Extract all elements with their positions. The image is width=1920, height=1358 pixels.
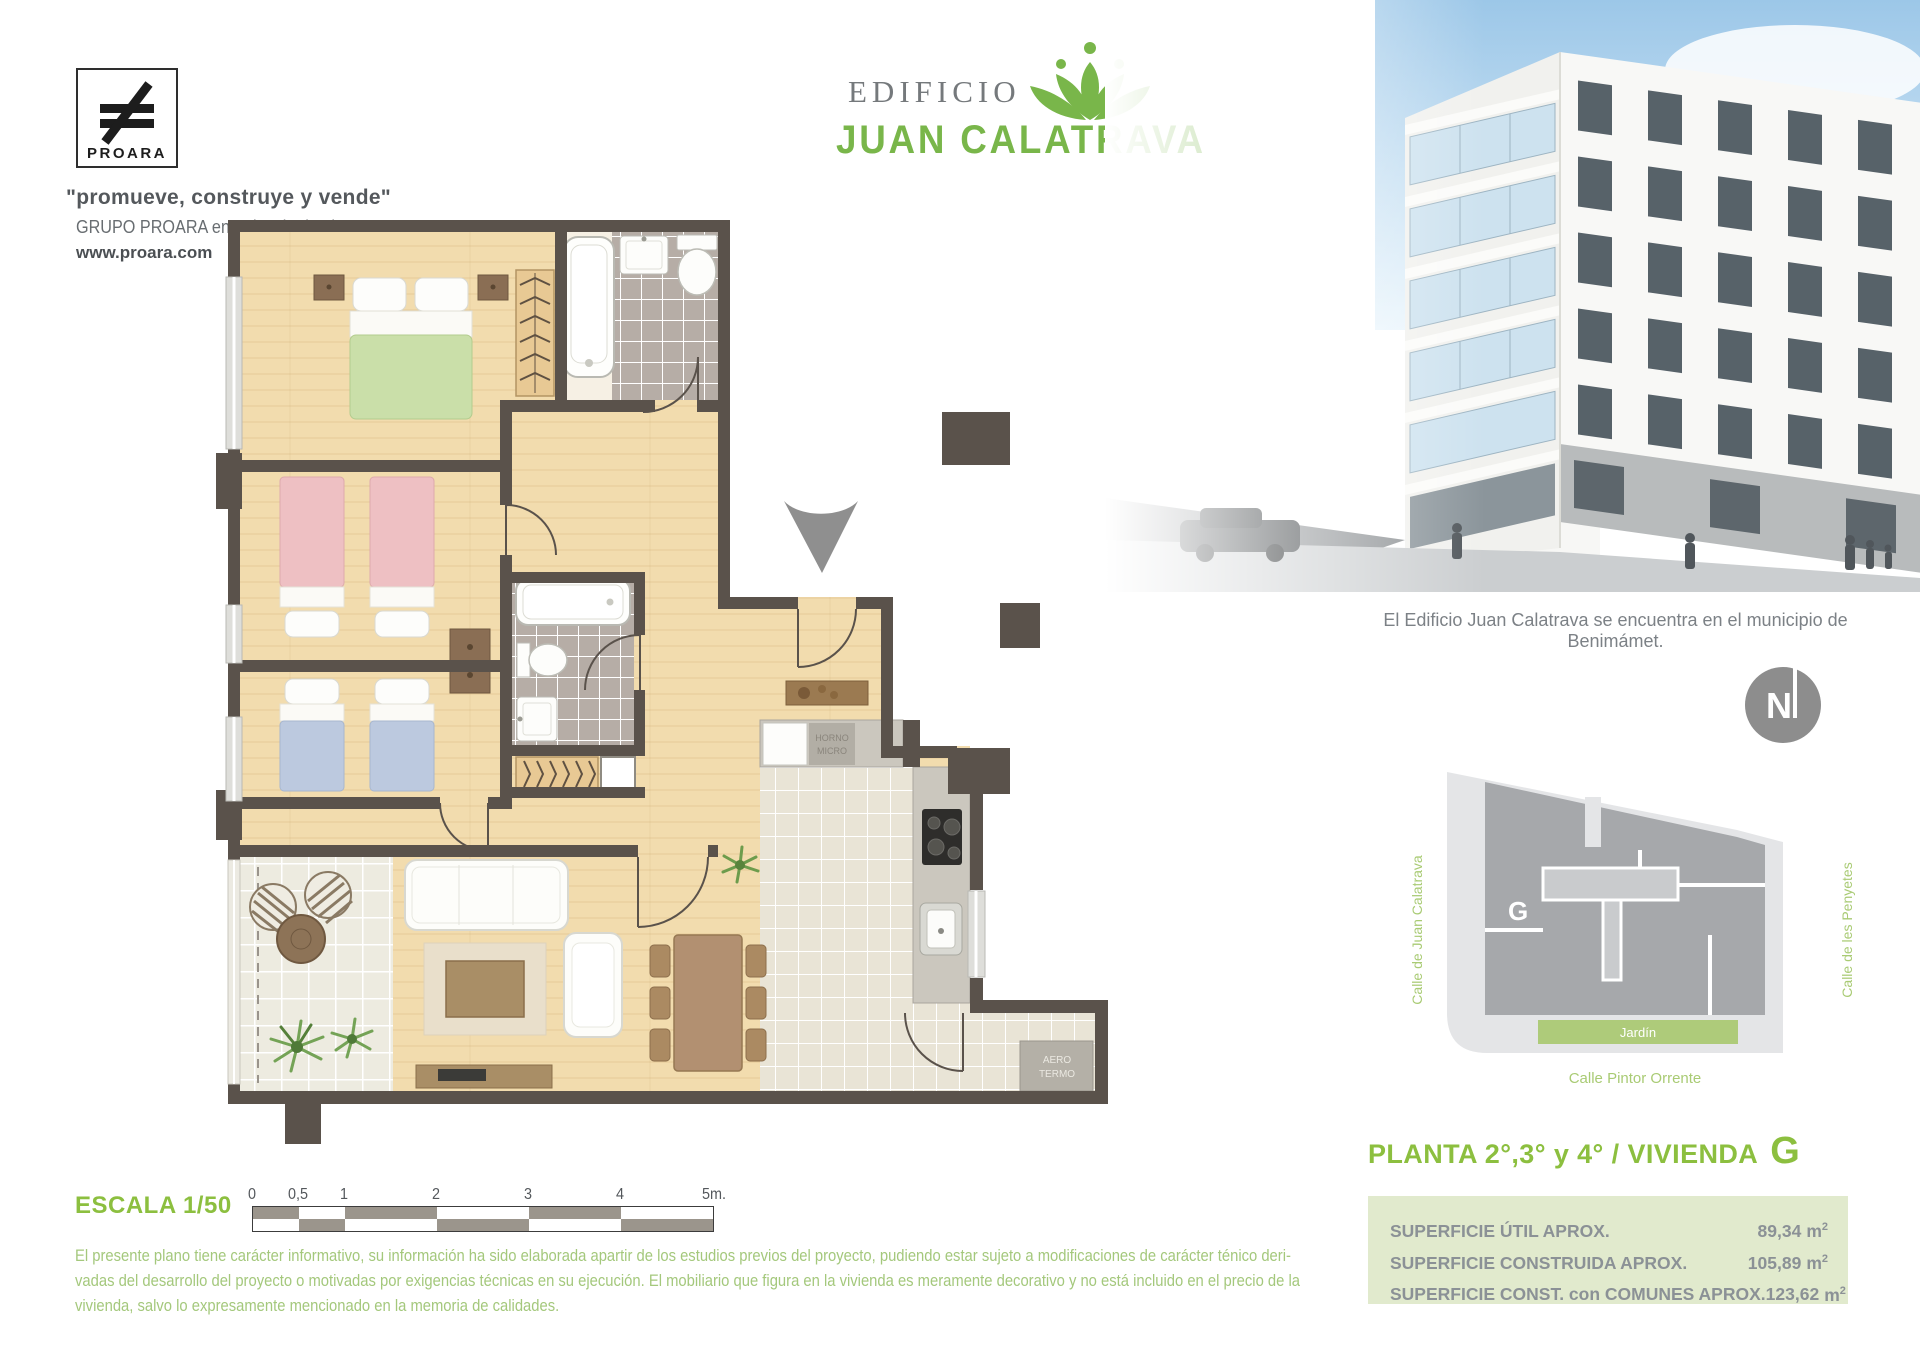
scale-tick: 2 xyxy=(432,1186,440,1204)
area-row-construida: SUPERFICIE CONSTRUIDA APROX. 105,89 m2 xyxy=(1390,1245,1828,1277)
area-value: 105,89 xyxy=(1748,1249,1802,1277)
scale-tick: 5m. xyxy=(702,1186,726,1204)
sink-icon xyxy=(517,697,557,741)
scale-tick: 0,5 xyxy=(288,1186,308,1204)
coffee-table xyxy=(446,961,524,1017)
floor-plan: HORNO MICRO AERO TERMO xyxy=(200,215,1120,1150)
scale-bar: 0 0,5 1 2 3 4 5m. xyxy=(248,1186,728,1238)
area-value: 89,34 xyxy=(1758,1217,1802,1245)
wardrobe-2 xyxy=(516,757,635,791)
compass: N xyxy=(1742,646,1852,756)
toilet-icon xyxy=(677,235,717,295)
kitchen-counter-right xyxy=(913,767,970,1003)
street-label-right: Calle de les Penyetes xyxy=(1839,862,1855,997)
bathtub-icon xyxy=(564,237,614,377)
single-bed-blue xyxy=(280,679,344,791)
compass-north-label: N xyxy=(1766,685,1792,726)
main-building-right-facade xyxy=(1560,52,1920,573)
toilet-icon xyxy=(517,643,567,677)
oven-label: HORNO xyxy=(815,733,849,743)
hall-console xyxy=(786,681,868,705)
dining-set xyxy=(650,935,766,1071)
kitchen-sink-icon xyxy=(920,903,962,955)
site-map: G Jardín Calle de Juan Calatrava Calle d… xyxy=(1400,765,1870,1095)
heater-label: TERMO xyxy=(1039,1069,1075,1080)
area-value: 123,62 xyxy=(1766,1280,1820,1308)
area-row-comunes: SUPERFICIE CONST. con COMUNES APROX. 123… xyxy=(1390,1277,1828,1309)
entrance-arrow-icon xyxy=(784,501,858,573)
tv-sideboard xyxy=(416,1065,552,1088)
single-bed-pink xyxy=(280,477,344,637)
brand-tagline: "promueve, construye y vende" xyxy=(66,186,391,210)
heater-room: AERO TERMO xyxy=(1020,1041,1093,1091)
scale-label: ESCALA 1/50 xyxy=(75,1192,232,1220)
street-label-left: Calle de Juan Calatrava xyxy=(1409,855,1425,1005)
fridge-icon xyxy=(763,723,807,765)
area-label: SUPERFICIE ÚTIL APROX. xyxy=(1390,1217,1610,1245)
not-equal-icon: PROARA xyxy=(78,70,176,166)
building-photo xyxy=(1105,0,1920,592)
sofa xyxy=(405,860,568,930)
area-label: SUPERFICIE CONST. con COMUNES APROX. xyxy=(1390,1280,1766,1308)
area-row-util: SUPERFICIE ÚTIL APROX. 89,34 m2 xyxy=(1390,1213,1828,1245)
wardrobe xyxy=(516,270,554,396)
unit-letter-on-map: G xyxy=(1508,896,1528,926)
proara-logo: PROARA xyxy=(76,68,178,168)
street-label-bottom: Calle Pintor Orrente xyxy=(1569,1070,1702,1087)
terrace-table xyxy=(277,915,325,963)
oven-label: MICRO xyxy=(817,746,847,756)
oven-micro-unit: HORNO MICRO xyxy=(809,723,855,765)
sink-icon xyxy=(620,236,668,274)
logo-text: PROARA xyxy=(87,145,167,162)
bathtub-icon xyxy=(516,579,630,625)
area-label: SUPERFICIE CONSTRUIDA APROX. xyxy=(1390,1249,1687,1277)
plan-title: PLANTA 2°,3° y 4° / VIVIENDA G xyxy=(1368,1130,1800,1173)
disclaimer: El presente plano tiene carácter informa… xyxy=(75,1243,1300,1318)
scale-tick: 4 xyxy=(616,1186,624,1204)
single-bed-blue xyxy=(370,679,434,791)
edificio-label: EDIFICIO xyxy=(848,74,1021,110)
heater-label: AERO xyxy=(1043,1055,1072,1066)
scale-tick: 1 xyxy=(340,1186,348,1204)
armchair xyxy=(564,933,622,1037)
cooktop-icon xyxy=(922,809,962,865)
garden-label: Jardín xyxy=(1620,1025,1656,1040)
plan-title-prefix: PLANTA 2°,3° y 4° / VIVIENDA xyxy=(1368,1139,1758,1170)
plan-title-unit: G xyxy=(1770,1130,1800,1173)
brand-website: www.proara.com xyxy=(76,243,212,263)
single-bed-pink xyxy=(370,477,434,637)
scale-tick: 3 xyxy=(524,1186,532,1204)
areas-box: SUPERFICIE ÚTIL APROX. 89,34 m2 SUPERFIC… xyxy=(1368,1196,1848,1304)
scale-tick: 0 xyxy=(248,1186,256,1204)
